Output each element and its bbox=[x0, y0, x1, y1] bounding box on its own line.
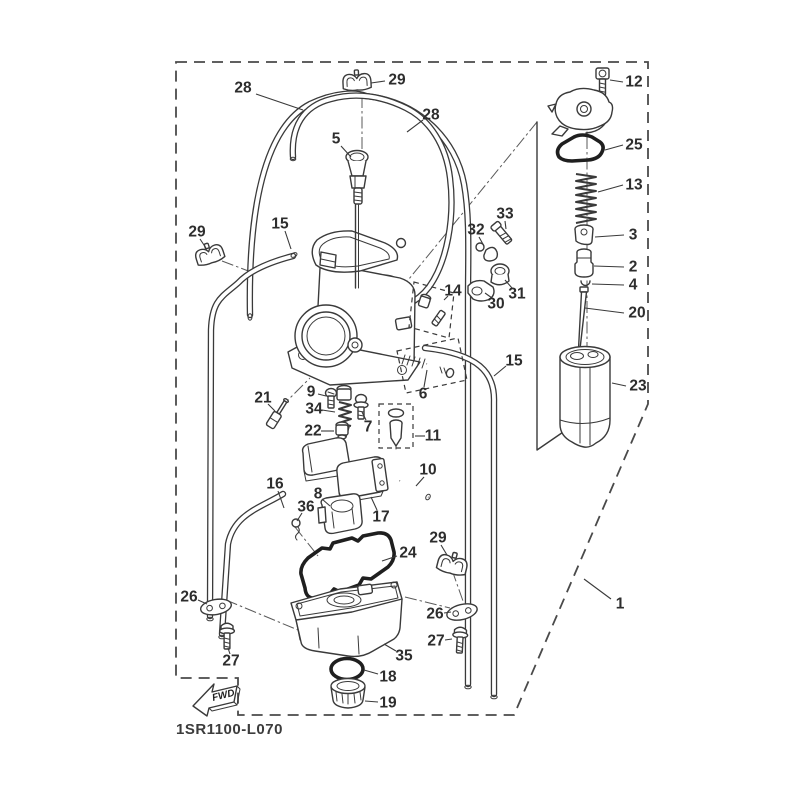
callout-leader-18 bbox=[364, 670, 378, 674]
hose-washer-left bbox=[199, 597, 232, 617]
callout-leader-28 bbox=[256, 94, 303, 110]
part-callout-7[interactable]: 7 bbox=[364, 419, 373, 436]
callout-leader-29 bbox=[371, 81, 385, 83]
lever-washer bbox=[476, 243, 497, 261]
callout-leader-23 bbox=[612, 383, 626, 386]
callout-leader-13 bbox=[598, 185, 623, 192]
hose-clamp-top bbox=[342, 69, 371, 91]
part-callout-15[interactable]: 15 bbox=[505, 353, 523, 370]
part-callout-24[interactable]: 24 bbox=[399, 545, 417, 562]
part-callout-27[interactable]: 27 bbox=[222, 653, 239, 670]
drain-o-ring bbox=[331, 659, 363, 680]
part-callout-16[interactable]: 16 bbox=[266, 476, 284, 493]
part-callout-13[interactable]: 13 bbox=[625, 177, 643, 194]
throttle-spring bbox=[576, 174, 596, 223]
part-callout-19[interactable]: 19 bbox=[379, 695, 397, 712]
float-pin bbox=[400, 481, 431, 501]
part-callout-2[interactable]: 2 bbox=[629, 259, 638, 276]
needle-clip bbox=[581, 281, 590, 286]
callout-leader-12 bbox=[610, 80, 623, 82]
part-callout-35[interactable]: 35 bbox=[395, 648, 413, 665]
callout-leader-15 bbox=[494, 366, 506, 376]
part-callout-15[interactable]: 15 bbox=[271, 216, 289, 233]
part-callout-29[interactable]: 29 bbox=[388, 72, 406, 89]
pilot-jet bbox=[336, 422, 348, 439]
part-callout-11[interactable]: 11 bbox=[425, 428, 442, 445]
callout-leader-28 bbox=[407, 120, 423, 132]
air-screw bbox=[490, 221, 513, 246]
callout-leader-25 bbox=[605, 145, 623, 150]
detail-box-11 bbox=[379, 404, 413, 449]
carburetor-body bbox=[288, 205, 420, 385]
part-callout-17[interactable]: 17 bbox=[372, 509, 389, 526]
part-callout-5[interactable]: 5 bbox=[332, 131, 341, 148]
hose-clamp-left bbox=[193, 239, 226, 267]
part-callout-30[interactable]: 30 bbox=[487, 296, 504, 313]
part-callout-12[interactable]: 12 bbox=[625, 74, 642, 91]
part-callout-29[interactable]: 29 bbox=[429, 530, 447, 547]
part-callout-28[interactable]: 28 bbox=[234, 80, 252, 97]
throttle-cover bbox=[548, 88, 613, 136]
part-callout-29[interactable]: 29 bbox=[188, 224, 206, 241]
part-callout-8[interactable]: 8 bbox=[314, 486, 323, 503]
part-callout-36[interactable]: 36 bbox=[297, 499, 315, 516]
callout-leader-4 bbox=[592, 284, 624, 285]
part-callout-31[interactable]: 31 bbox=[508, 286, 526, 303]
part-callout-25[interactable]: 25 bbox=[625, 137, 643, 154]
callout-leader-3 bbox=[595, 235, 624, 237]
parts-diagram-page: FWD 1SR1100-L070 28292851529122513324202… bbox=[0, 0, 800, 800]
screw-9 bbox=[326, 389, 337, 409]
wire-clip bbox=[292, 519, 300, 540]
part-callout-10[interactable]: 10 bbox=[419, 462, 436, 479]
callout-leader-34 bbox=[322, 410, 335, 412]
part-callout-21[interactable]: 21 bbox=[254, 390, 272, 407]
part-callout-23[interactable]: 23 bbox=[629, 378, 647, 395]
part-callout-33[interactable]: 33 bbox=[496, 206, 514, 223]
part-callout-9[interactable]: 9 bbox=[307, 384, 316, 401]
part-callout-32[interactable]: 32 bbox=[467, 222, 484, 239]
callout-leader-29 bbox=[441, 545, 447, 555]
part-callout-22[interactable]: 22 bbox=[304, 423, 321, 440]
throttle-cover-assembly bbox=[548, 68, 613, 447]
cover-gasket bbox=[558, 135, 604, 161]
part-callout-26[interactable]: 26 bbox=[426, 606, 444, 623]
drain-plug bbox=[331, 679, 365, 709]
callout-leader-35 bbox=[384, 644, 396, 651]
callout-leader-20 bbox=[585, 308, 624, 313]
part-callout-27[interactable]: 27 bbox=[427, 633, 444, 650]
callout-leader-2 bbox=[594, 266, 624, 267]
drain-hose bbox=[219, 494, 283, 639]
part-callout-3[interactable]: 3 bbox=[629, 227, 638, 244]
part-callout-34[interactable]: 34 bbox=[305, 401, 323, 418]
callout-leader-19 bbox=[365, 701, 378, 702]
carburetor-exploded-diagram: FWD 1SR1100-L070 28292851529122513324202… bbox=[0, 0, 800, 800]
callout-leader-9 bbox=[318, 394, 326, 396]
part-callout-4[interactable]: 4 bbox=[629, 277, 638, 294]
fwd-arrow: FWD bbox=[193, 684, 240, 716]
callout-leader-15 bbox=[285, 231, 291, 249]
part-callout-14[interactable]: 14 bbox=[444, 283, 462, 300]
callout-leader-6 bbox=[424, 370, 427, 387]
screw-7 bbox=[354, 395, 368, 420]
callout-leader-1 bbox=[584, 579, 611, 599]
spring-seat bbox=[575, 225, 593, 245]
callout-leader-27 bbox=[445, 639, 452, 640]
part-callout-28[interactable]: 28 bbox=[422, 107, 440, 124]
hose-clamp-bottom bbox=[436, 549, 470, 577]
part-callout-18[interactable]: 18 bbox=[379, 669, 397, 686]
needle-holder bbox=[575, 249, 593, 277]
inlet-collar bbox=[318, 494, 362, 534]
part-callout-1[interactable]: 1 bbox=[616, 596, 625, 613]
cable-adjuster bbox=[346, 151, 368, 205]
part-callout-6[interactable]: 6 bbox=[419, 386, 428, 403]
part-callout-26[interactable]: 26 bbox=[180, 589, 198, 606]
throttle-valve bbox=[560, 347, 610, 448]
part-callout-20[interactable]: 20 bbox=[628, 305, 645, 322]
diagram-code: 1SR1100-L070 bbox=[176, 721, 283, 738]
